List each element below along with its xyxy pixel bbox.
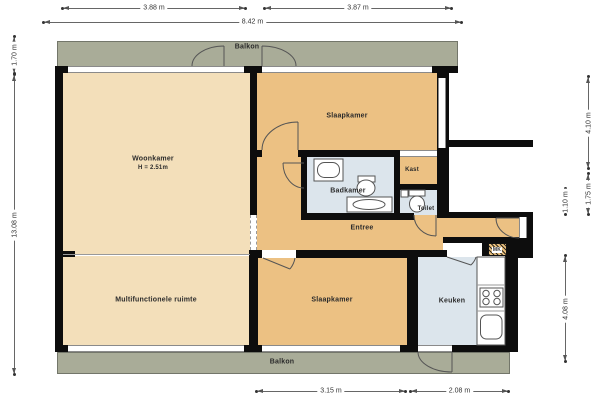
dimension-label: 2.08 m (446, 388, 473, 395)
front-door (519, 217, 527, 238)
window (262, 345, 400, 352)
dimension-label: 1.75 m (586, 180, 593, 207)
entree-extension (443, 217, 519, 237)
room-label-meterkast: MK (492, 247, 502, 253)
room-label-slaapkamer-bottom: Slaapkamer (311, 297, 352, 304)
dimension-label: 13.08 m (12, 209, 19, 240)
wall-segment (301, 213, 394, 220)
room-label-toilet: Toilet (418, 206, 435, 212)
partition-line (63, 254, 250, 255)
wall-segment (394, 150, 400, 215)
room-label-balkon-bottom: Balkon (270, 359, 295, 366)
wall-segment (301, 150, 307, 215)
window (438, 78, 446, 148)
window (262, 66, 432, 73)
floor-plan: Balkon Balkon Woonkamer H = 2.51m Slaapk… (0, 0, 600, 400)
room-label-entree: Entree (351, 225, 374, 232)
wall-segment (250, 73, 257, 215)
wall-segment (298, 150, 400, 157)
wall-segment (449, 140, 533, 147)
room-woonkamer (63, 73, 250, 254)
dimension-label: 4.10 m (586, 109, 593, 136)
wall-segment (505, 243, 518, 352)
stove-icon (480, 288, 503, 307)
wall-segment (407, 250, 418, 352)
dimension-label: 8.42 m (239, 19, 266, 26)
wall-segment (55, 66, 63, 352)
kitchen-sink-icon (481, 315, 503, 339)
balcony-door-opening (418, 345, 452, 352)
room-label-kast: Kast (405, 167, 419, 173)
room-slaapkamer-top (257, 73, 437, 150)
sliding-door (250, 215, 257, 250)
room-entree (257, 215, 443, 250)
window (68, 345, 244, 352)
room-label-balkon-top: Balkon (235, 44, 260, 51)
dimension-label: 4.08 m (563, 295, 570, 322)
room-label-badkamer: Badkamer (330, 188, 365, 195)
counter-divider-lines (477, 285, 505, 311)
room-label-keuken: Keuken (439, 298, 466, 305)
room-label-woonkamer-ceiling: H = 2.51m (138, 165, 168, 171)
room-badkamer (307, 157, 394, 213)
room-label-multifunctionele-ruimte: Multifunctionele ruimte (115, 297, 197, 304)
kitchen-fixtures (477, 257, 505, 345)
kitchen-counter-icon (477, 257, 505, 345)
dimension-label: 3.88 m (140, 5, 167, 12)
room-label-woonkamer: Woonkamer (132, 156, 174, 163)
closet-doors (400, 150, 437, 157)
dimension-label: 1.10 m (563, 188, 570, 215)
dimension-label: 3.15 m (317, 388, 344, 395)
wall-segment (394, 184, 437, 190)
window (68, 66, 244, 73)
room-label-slaapkamer-top: Slaapkamer (326, 113, 367, 120)
wall-segment (258, 250, 262, 258)
wall-segment (394, 213, 414, 220)
dimension-label: 1.70 m (12, 41, 19, 68)
wall-segment (296, 250, 418, 258)
wall-segment (527, 217, 533, 238)
wall-segment (249, 250, 258, 352)
wall-segment (257, 150, 262, 157)
dimension-label: 3.87 m (344, 5, 371, 12)
wall-segment (418, 250, 447, 257)
